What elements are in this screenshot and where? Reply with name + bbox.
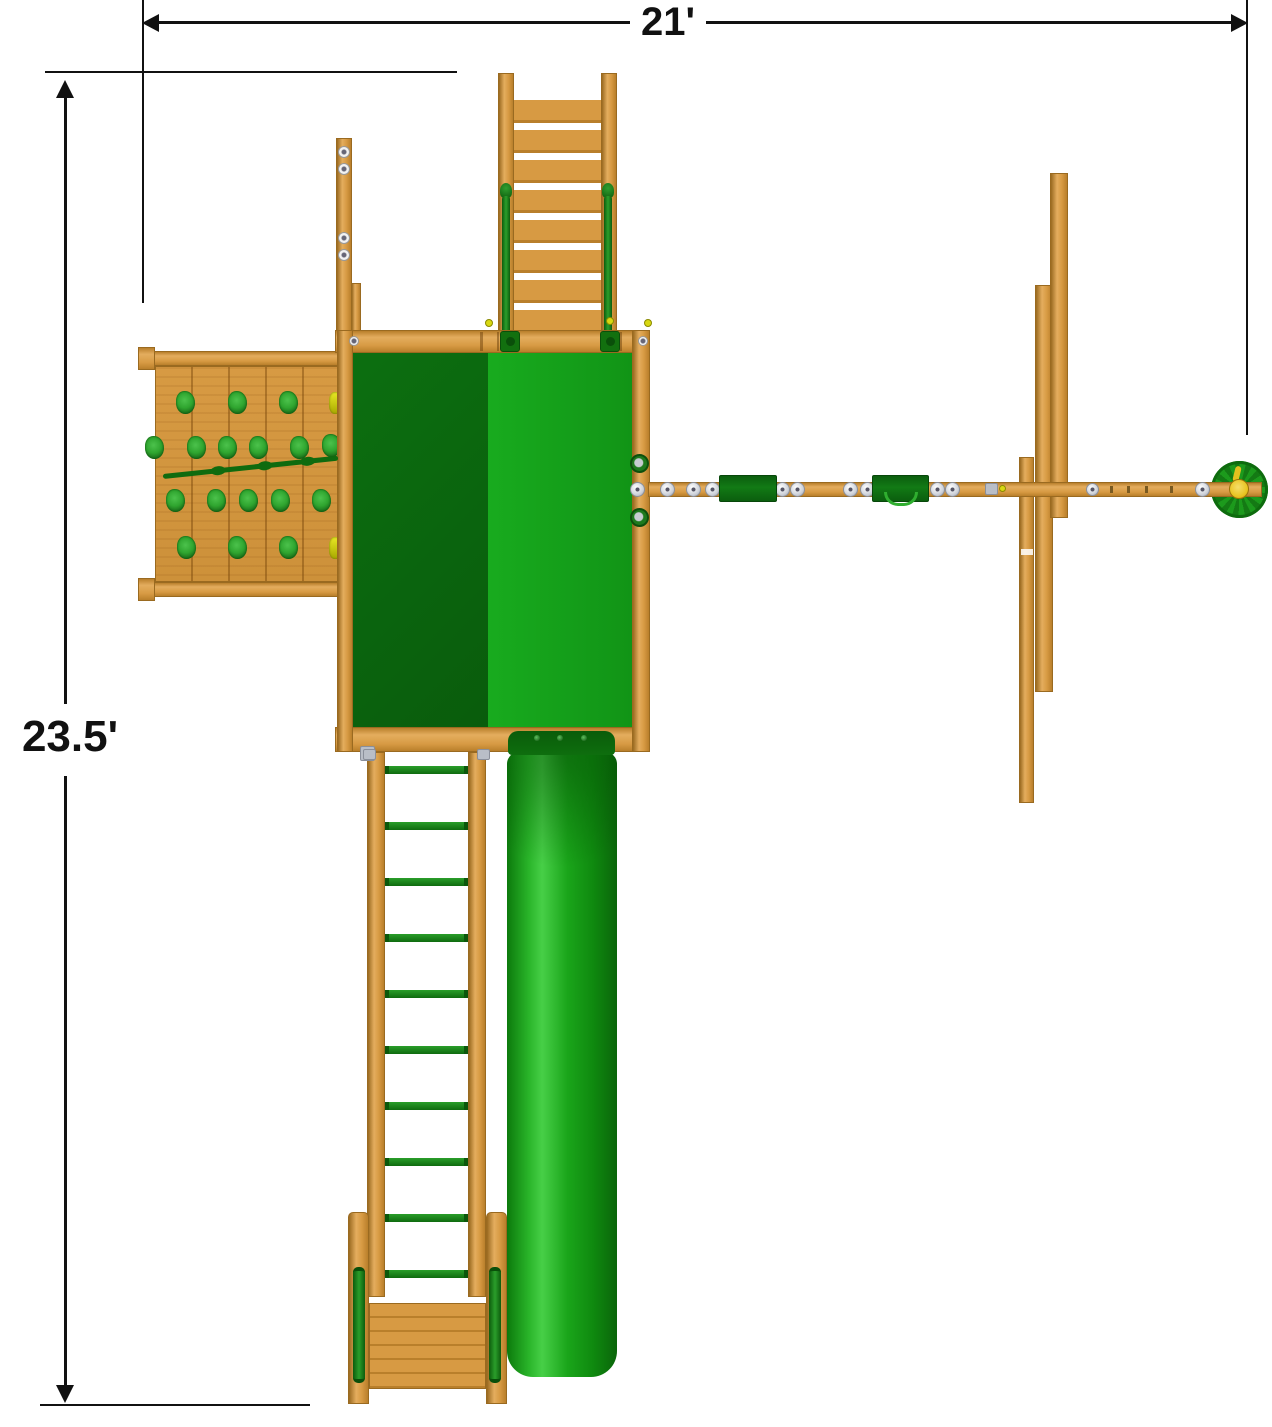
beam-mark	[1110, 486, 1113, 493]
beam-bolt	[1195, 482, 1210, 497]
yellow-screw	[999, 485, 1006, 492]
deck-canopy-right	[488, 350, 632, 727]
deck-post-step	[351, 283, 361, 335]
beam-mark	[1145, 486, 1148, 493]
climbing-hold	[312, 489, 331, 512]
arrowhead-right-icon	[1231, 14, 1248, 32]
access-steps	[369, 1303, 486, 1389]
height-dimension-label: 23.5'	[4, 710, 136, 764]
arrowhead-up-icon	[56, 80, 74, 98]
flange-bolt	[534, 735, 540, 741]
post-bolt	[338, 146, 350, 158]
ladder-bracket-left	[500, 331, 520, 352]
monkey-bar-rung	[385, 1102, 468, 1110]
wall-flange-top	[150, 351, 340, 366]
extension-line-top-horizontal	[45, 71, 457, 73]
beam-bolt	[1086, 483, 1099, 496]
swing-hanger	[630, 482, 645, 497]
monkey-bar-rung	[385, 878, 468, 886]
deck-frame-left	[337, 330, 353, 752]
width-dimension-line	[706, 21, 1236, 24]
climbing-hold	[176, 391, 195, 414]
climbing-hold	[249, 436, 268, 459]
climbing-hold	[177, 536, 196, 559]
climbing-hold	[290, 436, 309, 459]
swing-hanger	[686, 482, 701, 497]
handrail-left	[502, 196, 510, 334]
swing-hanger	[705, 482, 720, 497]
swing-hanger	[660, 482, 675, 497]
beam-bolt-green	[630, 454, 649, 473]
monkey-bar-rung	[385, 766, 468, 774]
frame-bolt	[638, 336, 648, 346]
swing-hanger	[945, 482, 960, 497]
climbing-hold	[228, 536, 247, 559]
height-dimension-line	[64, 96, 67, 704]
post-bolt	[338, 249, 350, 261]
climbing-hold	[207, 489, 226, 512]
playset-top-view-diagram: 21' 23.5'	[0, 0, 1272, 1427]
yellow-screw	[606, 317, 614, 325]
swing-seat	[719, 475, 777, 502]
post-joint-gap	[1021, 549, 1033, 555]
monkey-bar-rung	[385, 934, 468, 942]
rail-bracket-metal	[363, 749, 376, 760]
wall-cap-bottom	[138, 578, 155, 601]
swing-belt-strap	[884, 492, 918, 506]
swing-hanger	[843, 482, 858, 497]
flange-bolt	[581, 735, 587, 741]
monkey-bar-rung	[385, 1214, 468, 1222]
deck-canopy-left	[353, 350, 488, 727]
monkey-bar-rung	[385, 1270, 468, 1278]
flange-bolt	[557, 735, 563, 741]
monkey-bar-rung	[385, 1046, 468, 1054]
deck-frame-right	[632, 330, 650, 752]
beam-mark	[1170, 486, 1173, 493]
frame-seam	[480, 332, 483, 351]
tire-swing-swivel	[1229, 479, 1249, 499]
yellow-screw	[485, 319, 493, 327]
climbing-hold	[145, 436, 164, 459]
arrowhead-down-icon	[56, 1385, 74, 1403]
swing-hanger	[930, 482, 945, 497]
frame-seam	[497, 332, 499, 351]
climbing-hold	[279, 391, 298, 414]
yellow-screw	[644, 319, 652, 327]
post-bolt	[338, 232, 350, 244]
extension-line-right-vertical	[1246, 0, 1248, 435]
extension-line-left-vertical	[142, 0, 144, 303]
swing-hanger	[790, 482, 805, 497]
climbing-hold	[166, 489, 185, 512]
step-handle-left	[353, 1267, 365, 1383]
width-dimension-line	[156, 21, 630, 24]
post-bolt	[338, 163, 350, 175]
step-handle-right	[489, 1267, 501, 1383]
climbing-hold	[187, 436, 206, 459]
beam-bolt-green	[630, 508, 649, 527]
width-dimension-label: 21'	[628, 0, 708, 44]
frame-bolt	[349, 336, 359, 346]
ladder-planks	[514, 100, 601, 333]
monkey-bar-rung	[385, 1158, 468, 1166]
climbing-hold	[228, 391, 247, 414]
swing-hanger	[775, 482, 790, 497]
extension-line-bottom-horizontal	[40, 1404, 310, 1406]
wall-flange-bottom	[150, 582, 340, 597]
climbing-hold	[271, 489, 290, 512]
tube-slide-shading	[507, 752, 617, 902]
monkey-bar-rung	[385, 822, 468, 830]
climbing-hold	[218, 436, 237, 459]
rail-bracket-metal	[477, 749, 490, 760]
climbing-hold	[279, 536, 298, 559]
arrowhead-left-icon	[142, 14, 159, 32]
frame-seam	[620, 332, 622, 351]
ladder-bracket-right	[600, 331, 620, 352]
beam-mark	[1127, 486, 1130, 493]
wall-cap-top	[138, 347, 155, 370]
climbing-hold	[239, 489, 258, 512]
height-dimension-line	[64, 776, 67, 1388]
beam-bracket	[985, 483, 998, 495]
monkey-bar-rail-left	[367, 752, 385, 1297]
monkey-bar-rail-right	[468, 752, 486, 1297]
monkey-bar-rung	[385, 990, 468, 998]
a-frame-leg-south	[1019, 457, 1034, 803]
handrail-right	[604, 196, 612, 334]
a-frame-leg-north	[1050, 173, 1068, 518]
